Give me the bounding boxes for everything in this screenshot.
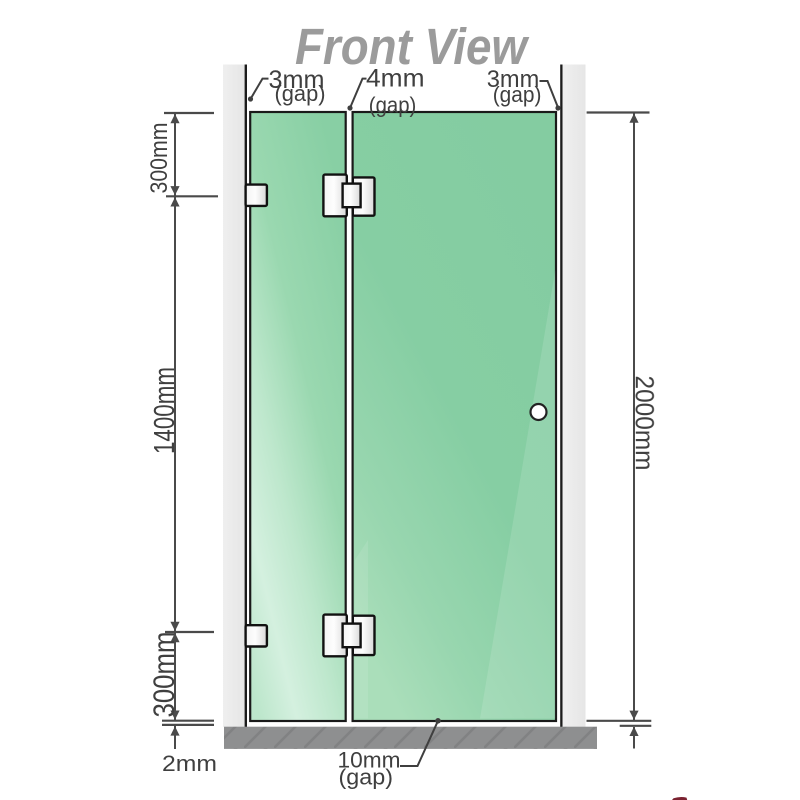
svg-text:(gap): (gap) [339,765,394,790]
svg-text:(gap): (gap) [275,81,326,106]
svg-text:4mm: 4mm [366,65,425,93]
svg-text:2mm: 2mm [162,751,217,776]
svg-text:(gap): (gap) [493,82,542,107]
svg-text:300mm: 300mm [148,632,181,718]
svg-text:300mm: 300mm [146,123,173,194]
svg-text:(gap): (gap) [369,93,417,118]
svg-text:1400mm: 1400mm [149,367,181,454]
svg-text:2000mm: 2000mm [630,376,660,471]
